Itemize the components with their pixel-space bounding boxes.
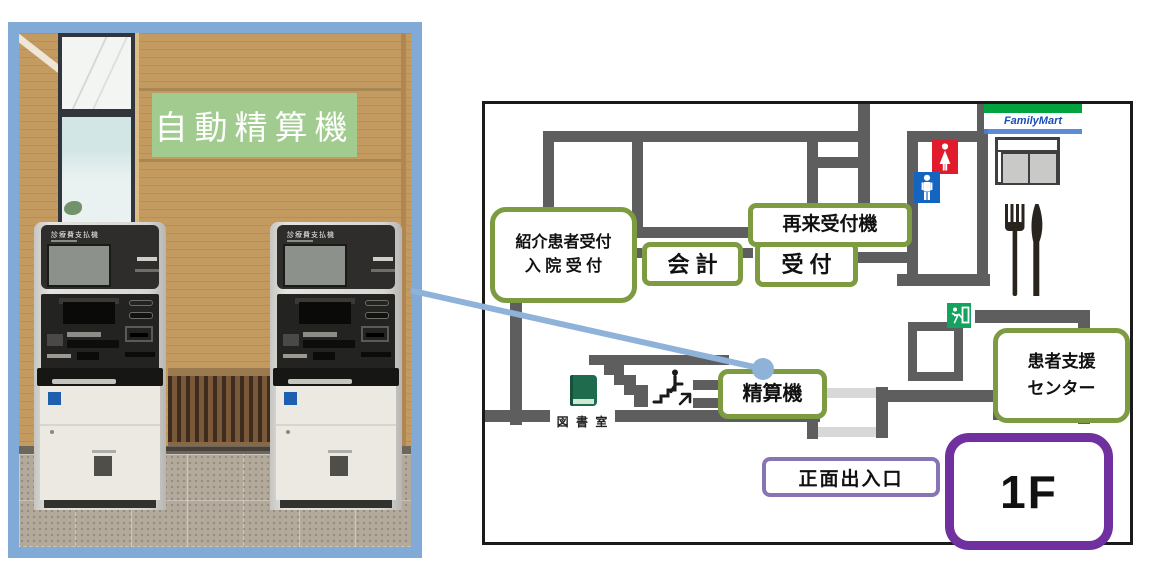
kiosk-cabinet xyxy=(276,386,396,500)
patient-support-center-box: 患者支援 センター xyxy=(993,328,1130,423)
vent-label xyxy=(92,450,116,453)
referral-reception-box: 紹介患者受付 入 院 受 付 xyxy=(490,207,637,303)
return-checkin-machine-box: 再来受付機 xyxy=(748,203,912,247)
stairs-step xyxy=(634,395,648,407)
kiosk-printer-slot xyxy=(371,269,395,272)
stairs-step xyxy=(604,365,624,375)
female-toilet-icon xyxy=(932,140,958,174)
kiosk-printer-label xyxy=(137,257,157,261)
vent xyxy=(94,456,112,476)
window xyxy=(58,33,135,228)
kiosk-mid-panel xyxy=(41,294,159,370)
floor-badge: 1F xyxy=(945,433,1113,550)
card-slot xyxy=(125,326,153,342)
window-pane-top xyxy=(62,37,131,109)
kiosk-screen xyxy=(47,244,111,287)
floor-map: FamilyMart xyxy=(482,101,1133,545)
kiosk-handle xyxy=(288,379,352,384)
kiosk-photo: 自動精算機 診療費支払機 xyxy=(8,22,422,558)
patient-support-line1: 患者支援 xyxy=(1028,349,1096,375)
kiosk-printer-slot xyxy=(135,269,159,272)
bill-slot xyxy=(365,312,389,319)
wall xyxy=(510,295,522,425)
cable xyxy=(159,447,279,451)
payment-machine-box: 精算機 xyxy=(718,369,827,419)
wall xyxy=(693,398,719,408)
escalator-icon xyxy=(650,368,696,410)
maker-logo xyxy=(284,392,297,405)
kiosk-label: 診療費支払機 xyxy=(287,230,335,240)
referral-line2: 入 院 受 付 xyxy=(525,255,602,279)
male-toilet-icon xyxy=(914,172,940,203)
emergency-exit-icon xyxy=(947,303,971,328)
stairs-icon xyxy=(589,355,729,365)
storefront-door xyxy=(1001,152,1031,185)
main-entrance-box: 正面出入口 xyxy=(762,457,940,497)
kiosk-top-panel: 診療費支払機 xyxy=(41,225,159,289)
wall xyxy=(693,380,719,390)
keypad xyxy=(47,334,63,346)
familymart-name-band: FamilyMart xyxy=(984,113,1082,129)
familymart-blue-bar xyxy=(984,129,1082,134)
photo-content: 自動精算機 診療費支払機 xyxy=(19,33,411,547)
coin-slot xyxy=(77,352,99,360)
stairs-step xyxy=(624,385,648,395)
kiosk-sublabel xyxy=(287,240,313,242)
dispense-tray xyxy=(63,302,115,324)
keyhole xyxy=(50,430,54,434)
familymart-sign: FamilyMart xyxy=(984,104,1082,134)
cabinet-seam xyxy=(40,424,160,426)
payment-kiosk-right: 診療費支払機 xyxy=(270,222,402,510)
panel-label xyxy=(67,332,101,337)
panel-label xyxy=(303,332,337,337)
storefront-icon xyxy=(995,137,1060,185)
wall xyxy=(876,387,888,438)
wall xyxy=(858,104,870,205)
book-icon xyxy=(570,375,597,406)
accounting-box: 会 計 xyxy=(642,242,743,286)
referral-line1: 紹介患者受付 xyxy=(515,231,611,255)
kiosk-cabinet xyxy=(40,386,160,500)
panel-slot xyxy=(67,340,119,348)
maker-logo xyxy=(48,392,61,405)
kiosk-top-panel: 診療費支払機 xyxy=(277,225,395,289)
kiosk-handle xyxy=(52,379,116,384)
storefront-door xyxy=(1028,152,1058,185)
indicator xyxy=(129,300,153,306)
familymart-green-bar xyxy=(984,104,1082,113)
entrance-doorway xyxy=(818,427,876,437)
panel-label-2 xyxy=(283,354,307,358)
auto-payment-sign-text: 自動精算機 xyxy=(155,101,355,149)
indicator xyxy=(365,300,389,306)
patient-support-line2: センター xyxy=(1028,376,1096,402)
kiosk-label: 診療費支払機 xyxy=(51,230,99,240)
keypad xyxy=(283,334,299,346)
wall xyxy=(818,157,858,168)
radiator xyxy=(168,368,270,452)
small-room xyxy=(908,322,963,381)
panel-label-2 xyxy=(47,354,71,358)
card-slot xyxy=(361,326,389,342)
library-label: 図 書 室 xyxy=(547,414,619,429)
receipt-slot xyxy=(361,352,391,357)
kiosk-sublabel xyxy=(51,240,77,242)
reception-box: 受 付 xyxy=(755,241,858,287)
wood-seam xyxy=(139,159,401,162)
auto-payment-sign: 自動精算機 xyxy=(152,93,357,157)
kiosk-screen xyxy=(283,244,347,287)
bill-slot xyxy=(129,312,153,319)
radiator-rail xyxy=(168,368,270,376)
kiosk-plinth xyxy=(280,500,392,508)
restaurant-icon xyxy=(1005,204,1047,299)
wall xyxy=(975,310,1090,323)
receipt-slot xyxy=(125,352,155,357)
wood-seam xyxy=(139,88,401,91)
wall xyxy=(807,131,818,205)
payment-kiosk-left: 診療費支払機 xyxy=(34,222,166,510)
book-page-edge xyxy=(573,399,594,404)
wall xyxy=(888,390,993,402)
page: 自動精算機 診療費支払機 xyxy=(0,0,1168,572)
vent-label xyxy=(328,450,352,453)
coin-slot xyxy=(313,352,335,360)
kiosk-plinth xyxy=(44,500,156,508)
stairs-step xyxy=(614,375,636,385)
wall xyxy=(543,131,554,214)
dispense-tray xyxy=(299,302,351,324)
panel-slot xyxy=(303,340,355,348)
kiosk-mid-panel xyxy=(277,294,395,370)
radiator-fins xyxy=(168,376,270,442)
vent xyxy=(330,456,348,476)
keyhole xyxy=(286,430,290,434)
cabinet-seam xyxy=(276,424,396,426)
familymart-label: FamilyMart xyxy=(1004,115,1062,127)
kiosk-printer-label xyxy=(373,257,393,261)
wall xyxy=(543,131,870,142)
